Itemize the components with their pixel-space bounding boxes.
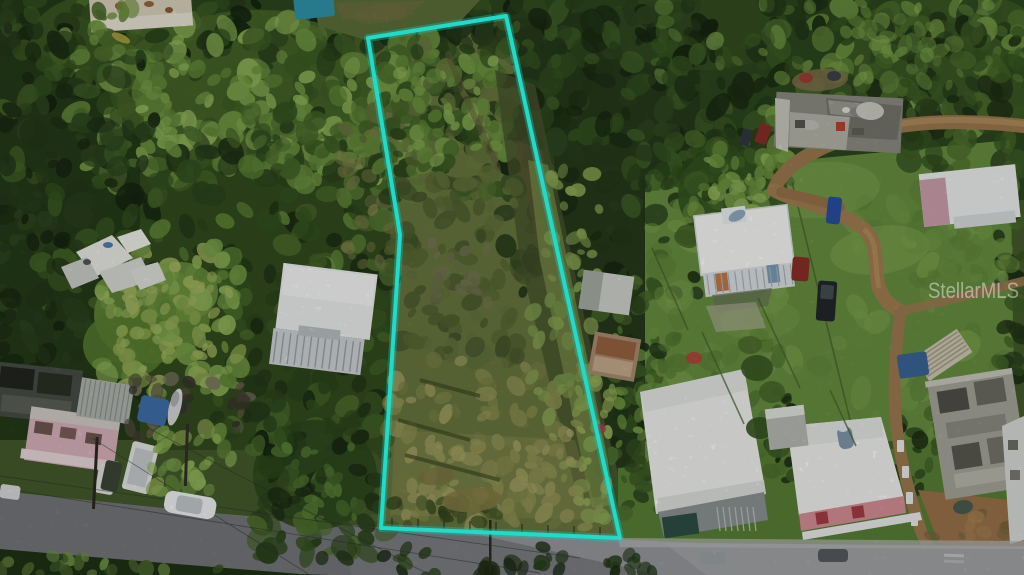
svg-text:StellarMLS: StellarMLS bbox=[928, 278, 1019, 303]
